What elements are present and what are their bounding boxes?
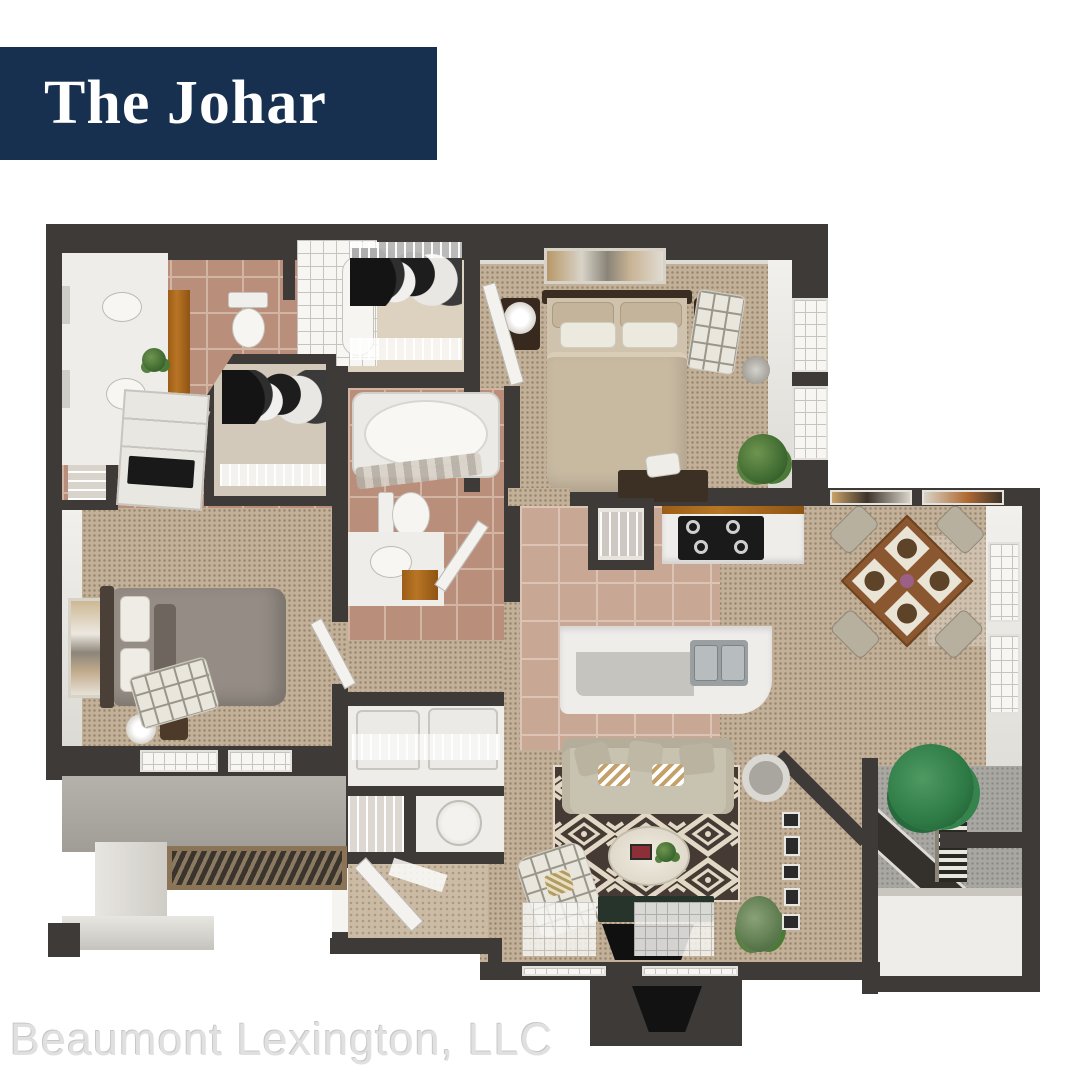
closet-shoe-shelf <box>350 338 462 360</box>
bathroom-sink <box>102 292 142 322</box>
water-heater <box>436 800 482 846</box>
stove-burner <box>686 520 700 534</box>
mask <box>330 954 480 984</box>
wall-living-right <box>862 758 878 994</box>
porch-grate <box>167 846 347 890</box>
window <box>792 298 828 372</box>
wall-shower-stub <box>283 224 295 300</box>
wall-art-flat <box>922 490 1004 505</box>
wall-entry-right <box>488 938 502 980</box>
toilet <box>228 292 268 308</box>
window <box>522 966 606 976</box>
doorway-carpet <box>508 488 570 506</box>
sink-basin <box>721 645 745 681</box>
sink-basin <box>694 645 718 681</box>
company-watermark: Beaumont Lexington, LLC <box>10 1014 553 1066</box>
wall-balcony-bottom <box>862 976 1040 992</box>
bathroom-plant <box>142 348 166 372</box>
wall-closet1-bottom <box>348 372 466 388</box>
window-light-patch <box>522 902 596 956</box>
window <box>642 966 738 976</box>
floor-plan <box>42 220 1042 1055</box>
side-table <box>742 356 770 384</box>
window <box>228 750 292 772</box>
sofa-cushion <box>679 742 716 775</box>
window-light-patch <box>634 902 714 956</box>
coat-closet-floor <box>348 796 404 852</box>
headboard2 <box>100 586 114 708</box>
wall-linen-bottom <box>56 500 118 510</box>
wall-laundry-top <box>346 692 504 706</box>
porch-wall-cap <box>48 923 80 957</box>
dresser <box>116 389 210 511</box>
pillow <box>622 322 678 348</box>
living-plant <box>736 896 782 952</box>
mirror-light <box>62 286 70 324</box>
gallery-frame <box>782 864 800 880</box>
table-plant <box>656 842 676 862</box>
pantry-shelves <box>600 512 642 556</box>
pillow <box>120 596 150 642</box>
wall-dining-bottom <box>940 832 1040 848</box>
closet-wire-shelf <box>350 242 462 258</box>
counter-wood-trim <box>662 506 804 514</box>
closet2-shoe-shelf <box>220 464 326 486</box>
window <box>140 750 218 772</box>
gallery-frame <box>782 914 800 930</box>
wall-art <box>544 248 666 284</box>
gallery-frame <box>784 888 800 906</box>
table-books <box>630 844 652 860</box>
stove-burner <box>734 540 748 554</box>
tv-on-dresser <box>127 456 195 489</box>
wall-laundry-bottom <box>346 786 504 796</box>
wall-entry-bottom <box>330 938 494 954</box>
throw-pillow <box>598 764 630 786</box>
window <box>792 386 828 460</box>
vanity2-wood-cabinet <box>402 570 438 600</box>
mirror-light <box>62 370 70 408</box>
pillow <box>560 322 616 348</box>
stove-burner <box>694 540 708 554</box>
bedroom-plant <box>738 434 788 484</box>
porch-walkway <box>62 916 214 950</box>
vanity-wood-cabinet <box>168 290 190 398</box>
counter-inner-face <box>576 652 694 696</box>
title-banner: The Johar <box>0 47 437 160</box>
gallery-frame <box>782 812 800 828</box>
monstera-plant <box>888 744 974 830</box>
stove-burner <box>726 520 740 534</box>
porch-concrete <box>62 776 346 852</box>
plan-title: The Johar <box>44 68 327 139</box>
flyer: The Johar <box>0 0 1080 1080</box>
closet2-clothes <box>222 370 326 424</box>
gallery-frame <box>784 836 800 856</box>
desk-chair <box>645 452 682 479</box>
laundry-wire-shelf <box>352 734 500 760</box>
window <box>988 634 1020 714</box>
patio-storage <box>878 888 1022 976</box>
wall-closet-divider <box>404 796 416 854</box>
toilet <box>232 308 265 348</box>
wall-right-outer <box>1022 488 1040 990</box>
hallway-floor <box>348 640 504 692</box>
floor-mirror <box>742 754 790 802</box>
throw-pillow <box>652 764 684 786</box>
